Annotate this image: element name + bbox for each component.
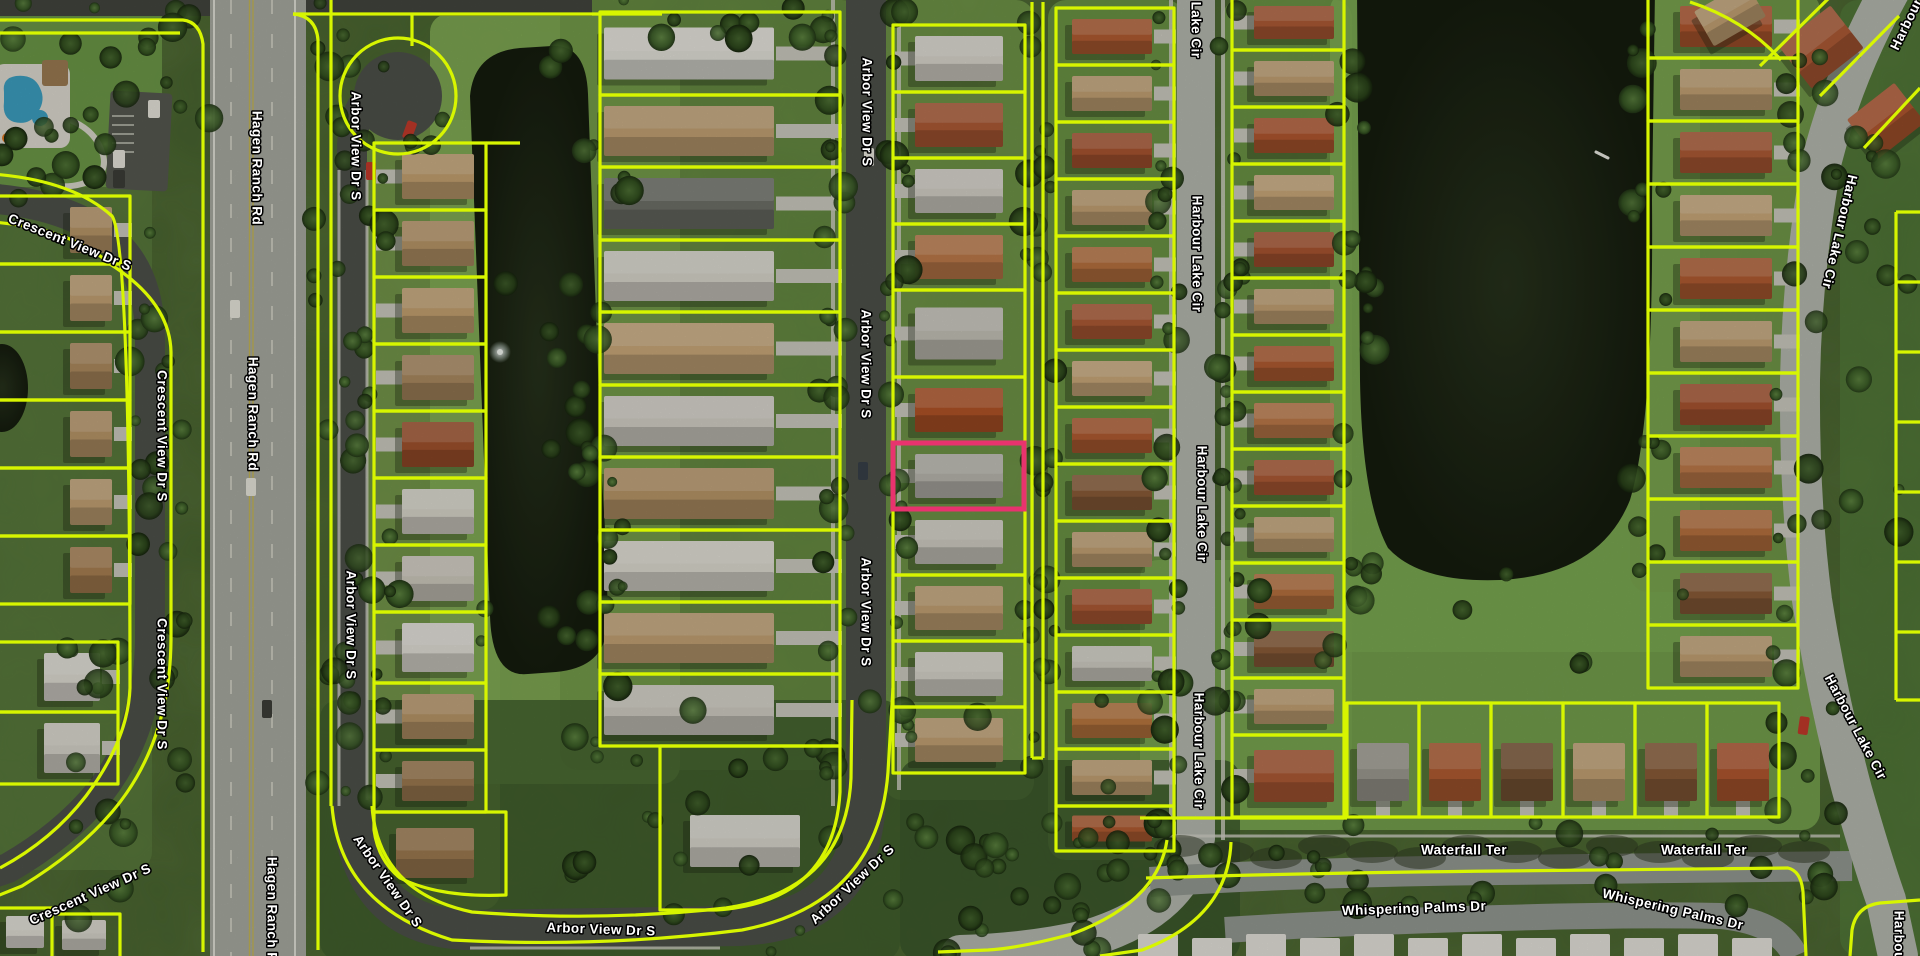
street-label: Crescent View Dr S xyxy=(154,370,169,502)
street-label: Arbor View Dr S xyxy=(348,91,363,200)
street-label: Hagen Ranch Rd xyxy=(249,111,264,225)
street-label: Arbor View Dr S xyxy=(858,309,873,418)
street-label: Waterfall Ter xyxy=(1661,843,1747,858)
street-label: Hagen Ranch Rd xyxy=(245,357,260,471)
street-label: Harbour L xyxy=(1891,911,1906,956)
street-label: Harbour Lake Cir xyxy=(1189,196,1204,313)
street-label: Lake Cir xyxy=(1188,2,1203,59)
street-label: Crescent View Dr S xyxy=(154,618,169,750)
street-label: Hagen Ranch Rd xyxy=(264,857,279,956)
street-label: Harbour Lake Cir xyxy=(1194,446,1209,563)
street-label: Arbor View Dr S xyxy=(858,557,873,666)
street-label: Arbor View Dr S xyxy=(343,570,358,679)
street-label: Arbor View Dr S xyxy=(859,57,874,166)
terrain-speckle xyxy=(0,0,1920,956)
street-label: Harbour Lake Cir xyxy=(1191,693,1206,810)
street-label: Waterfall Ter xyxy=(1421,843,1507,858)
aerial-parcel-map-viewport[interactable]: Crescent View Dr SCrescent View Dr SCres… xyxy=(0,0,1920,956)
map-canvas[interactable]: Crescent View Dr SCrescent View Dr SCres… xyxy=(0,0,1920,956)
